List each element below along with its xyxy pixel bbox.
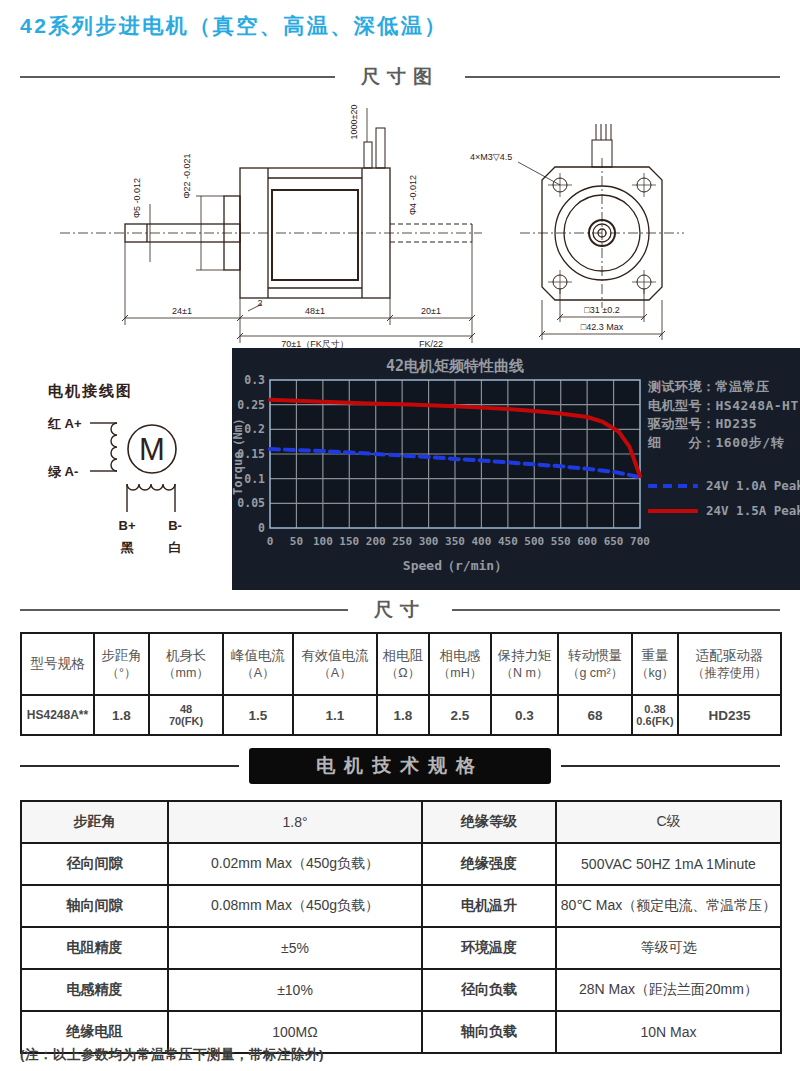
test-condition-row: 电机型号：HS4248A-HT [648,397,799,416]
wiring-diagram: 电机接线图 M 红 A+ 绿 A- B+ B- 黑 白 [28,372,228,564]
spec-row: 径向间隙 0.02mm Max（450g负载） 绝缘强度 500VAC 50HZ… [21,843,781,885]
spec-row: 电阻精度 ±5% 环境温度 等级可选 [21,927,781,969]
spec-row: 步距角 1.8° 绝缘等级 C级 [21,801,781,843]
test-conditions: 测试环境：常温常压 电机型号：HS4248A-HT 驱动型号：HD235 细 分… [648,378,799,452]
legend-item-1a: 24V 1.0A Peak [648,478,800,493]
wire-b-minus: B- [168,518,182,533]
wire-white: 白 [169,540,182,555]
dimensions-table-header: 型号规格 步距角（°） 机身长（mm） 峰值电流（A） 有效值电流（A） 相电阻… [21,633,781,695]
spec-value: 1.8° [168,801,422,843]
svg-text:150: 150 [339,535,359,548]
motor-symbol: M [139,432,165,467]
dim-rear-length-fk: FK/22 [419,339,443,348]
col-rms-current: 有效值电流（A） [293,633,377,695]
section-header-specs: 电机技术规格 [20,748,780,784]
section-header-dimension-drawing: 尺寸图 [20,62,780,92]
svg-text:550: 550 [551,535,571,548]
col-peak-current: 峰值电流（A） [223,633,293,695]
svg-text:0.3: 0.3 [244,373,265,387]
svg-text:500: 500 [524,535,544,548]
col-inductance: 相电感（mH） [429,633,491,695]
spec-value: 10N Max [556,1011,781,1053]
chart-y-axis-label: Torque（Nm） [232,413,245,495]
spec-value: ±5% [168,927,422,969]
dim-rear-shaft-diameter: Φ4 -0.012 [408,175,418,215]
test-condition-row: 测试环境：常温常压 [648,378,799,397]
spec-label: 步距角 [21,801,168,843]
dim-shaft-length: 24±1 [172,306,192,316]
dim-rear-length: 20±1 [421,306,441,316]
section-title: 尺寸图 [361,64,439,90]
spec-value: 等级可选 [556,927,781,969]
col-model: 型号规格 [21,633,94,695]
wire-black: 黑 [121,540,135,555]
spec-row: 电感精度 ±10% 径向负载 28N Max（距法兰面20mm） [21,969,781,1011]
svg-text:100: 100 [313,535,333,548]
dim-mounting-holes: 4×M3▽4.5 [470,152,512,162]
dim-body-length: 48±1 [305,306,325,316]
spec-value: ±10% [168,969,422,1011]
col-weight: 重量（kg） [632,633,678,695]
chart-x-axis-label: Speed（r/min） [403,558,507,573]
spec-value: 0.08mm Max（450g负载） [168,885,422,927]
spec-value: 28N Max（距法兰面20mm） [556,969,781,1011]
svg-text:0.2: 0.2 [244,422,265,436]
svg-text:200: 200 [366,535,386,548]
header-rule-right [452,609,780,611]
svg-text:0: 0 [267,535,274,548]
spec-value: C级 [556,801,781,843]
dim-pilot-diameter: Φ22 -0.021 [182,153,192,198]
spec-value: 0.02mm Max（450g负载） [168,843,422,885]
svg-text:400: 400 [471,535,491,548]
wire-b-plus: B+ [119,518,136,533]
spec-value: 500VAC 50HZ 1mA 1Minute [556,843,781,885]
header-rule-left [20,76,335,78]
spec-label: 电机温升 [422,885,556,927]
wire-a-minus: 绿 A- [48,464,78,479]
spec-label: 轴向间隙 [21,885,168,927]
cell-model: HS4248A** [21,695,94,735]
page-title: 42系列步进电机（真空、高温、深低温） [20,12,448,40]
spec-label: 径向负载 [422,969,556,1011]
svg-text:0.1: 0.1 [244,472,265,486]
col-body-length: 机身长（mm） [149,633,223,695]
spec-label: 绝缘强度 [422,843,556,885]
dim-flange-square: □42.3 Max [581,322,624,332]
spec-label: 轴向负载 [422,1011,556,1053]
legend-line-blue-dashed [648,484,698,488]
spec-label: 环境温度 [422,927,556,969]
cell-inertia: 68 [558,695,632,735]
header-rule-right [465,76,780,78]
side-view-drawing [60,108,482,343]
section-title: 电机技术规格 [316,753,484,779]
col-inertia: 转动惯量（g cm²） [558,633,632,695]
cell-rms-current: 1.1 [293,695,377,735]
svg-text:250: 250 [392,535,412,548]
cell-holding-torque: 0.3 [491,695,558,735]
svg-text:0: 0 [258,521,265,535]
wiring-title: 电机接线图 [48,382,133,399]
cell-resistance: 1.8 [377,695,429,735]
cell-weight: 0.380.6(FK) [632,695,678,735]
specs-banner: 电机技术规格 [249,748,551,784]
spec-row: 轴向间隙 0.08mm Max（450g负载） 电机温升 80℃ Max（额定电… [21,885,781,927]
torque-chart-panel: 0.30.250.20.150.10.050050100150200250300… [232,348,800,590]
dim-wire-length: 1000±20 [349,105,359,140]
dimensions-table: 型号规格 步距角（°） 机身长（mm） 峰值电流（A） 有效值电流（A） 相电阻… [20,632,782,736]
col-step-angle: 步距角（°） [94,633,149,695]
header-rule-left [20,609,348,611]
section-title: 尺寸 [374,597,426,623]
cell-body-length: 4870(FK) [149,695,223,735]
dim-step: 2 [257,298,262,308]
spec-value: 80℃ Max（额定电流、常温常压） [556,885,781,927]
spec-label: 径向间隙 [21,843,168,885]
svg-text:650: 650 [604,535,624,548]
svg-text:700: 700 [630,535,650,548]
wire-a-plus: 红 A+ [47,416,82,431]
dimensions-table-row: HS4248A** 1.8 4870(FK) 1.5 1.1 1.8 2.5 0… [21,695,781,735]
footer-note: (注：以上参数均为常温常压下测量，带标注除外) [20,1046,324,1064]
spec-table: 步距角 1.8° 绝缘等级 C级 径向间隙 0.02mm Max（450g负载）… [20,800,782,1054]
svg-text:350: 350 [445,535,465,548]
test-condition-row: 驱动型号：HD235 [648,415,799,434]
cell-step-angle: 1.8 [94,695,149,735]
legend-item-15a: 24V 1.5A Peak [648,503,800,518]
section-header-dimensions: 尺寸 [20,595,780,625]
dim-shaft-diameter: Φ5 -0.012 [132,178,142,218]
spec-label: 电感精度 [21,969,168,1011]
svg-text:0.25: 0.25 [237,398,265,412]
chart-title: 42电机矩频特性曲线 [386,357,524,375]
dimension-drawing: 1000±20 Φ5 -0.012 Φ22 -0.021 Φ4 -0.012 2… [20,96,780,348]
cell-driver: HD235 [678,695,781,735]
dim-body-length-fk: 70±1（FK尺寸） [281,339,348,348]
svg-text:50: 50 [290,535,303,548]
cell-inductance: 2.5 [429,695,491,735]
test-condition-row: 细 分：1600步/转 [648,434,799,453]
col-resistance: 相电阻（Ω） [377,633,429,695]
header-rule-right [561,765,780,767]
col-holding-torque: 保持力矩（N m） [491,633,558,695]
cell-peak-current: 1.5 [223,695,293,735]
col-driver: 适配驱动器（推荐使用） [678,633,781,695]
header-rule-left [20,765,239,767]
spec-label: 电阻精度 [21,927,168,969]
svg-text:450: 450 [498,535,518,548]
spec-label: 绝缘等级 [422,801,556,843]
svg-text:0.05: 0.05 [237,496,265,510]
dim-bolt-square: □31 ±0.2 [584,305,619,315]
svg-text:600: 600 [577,535,597,548]
svg-text:300: 300 [419,535,439,548]
legend-line-red-solid [648,509,698,513]
